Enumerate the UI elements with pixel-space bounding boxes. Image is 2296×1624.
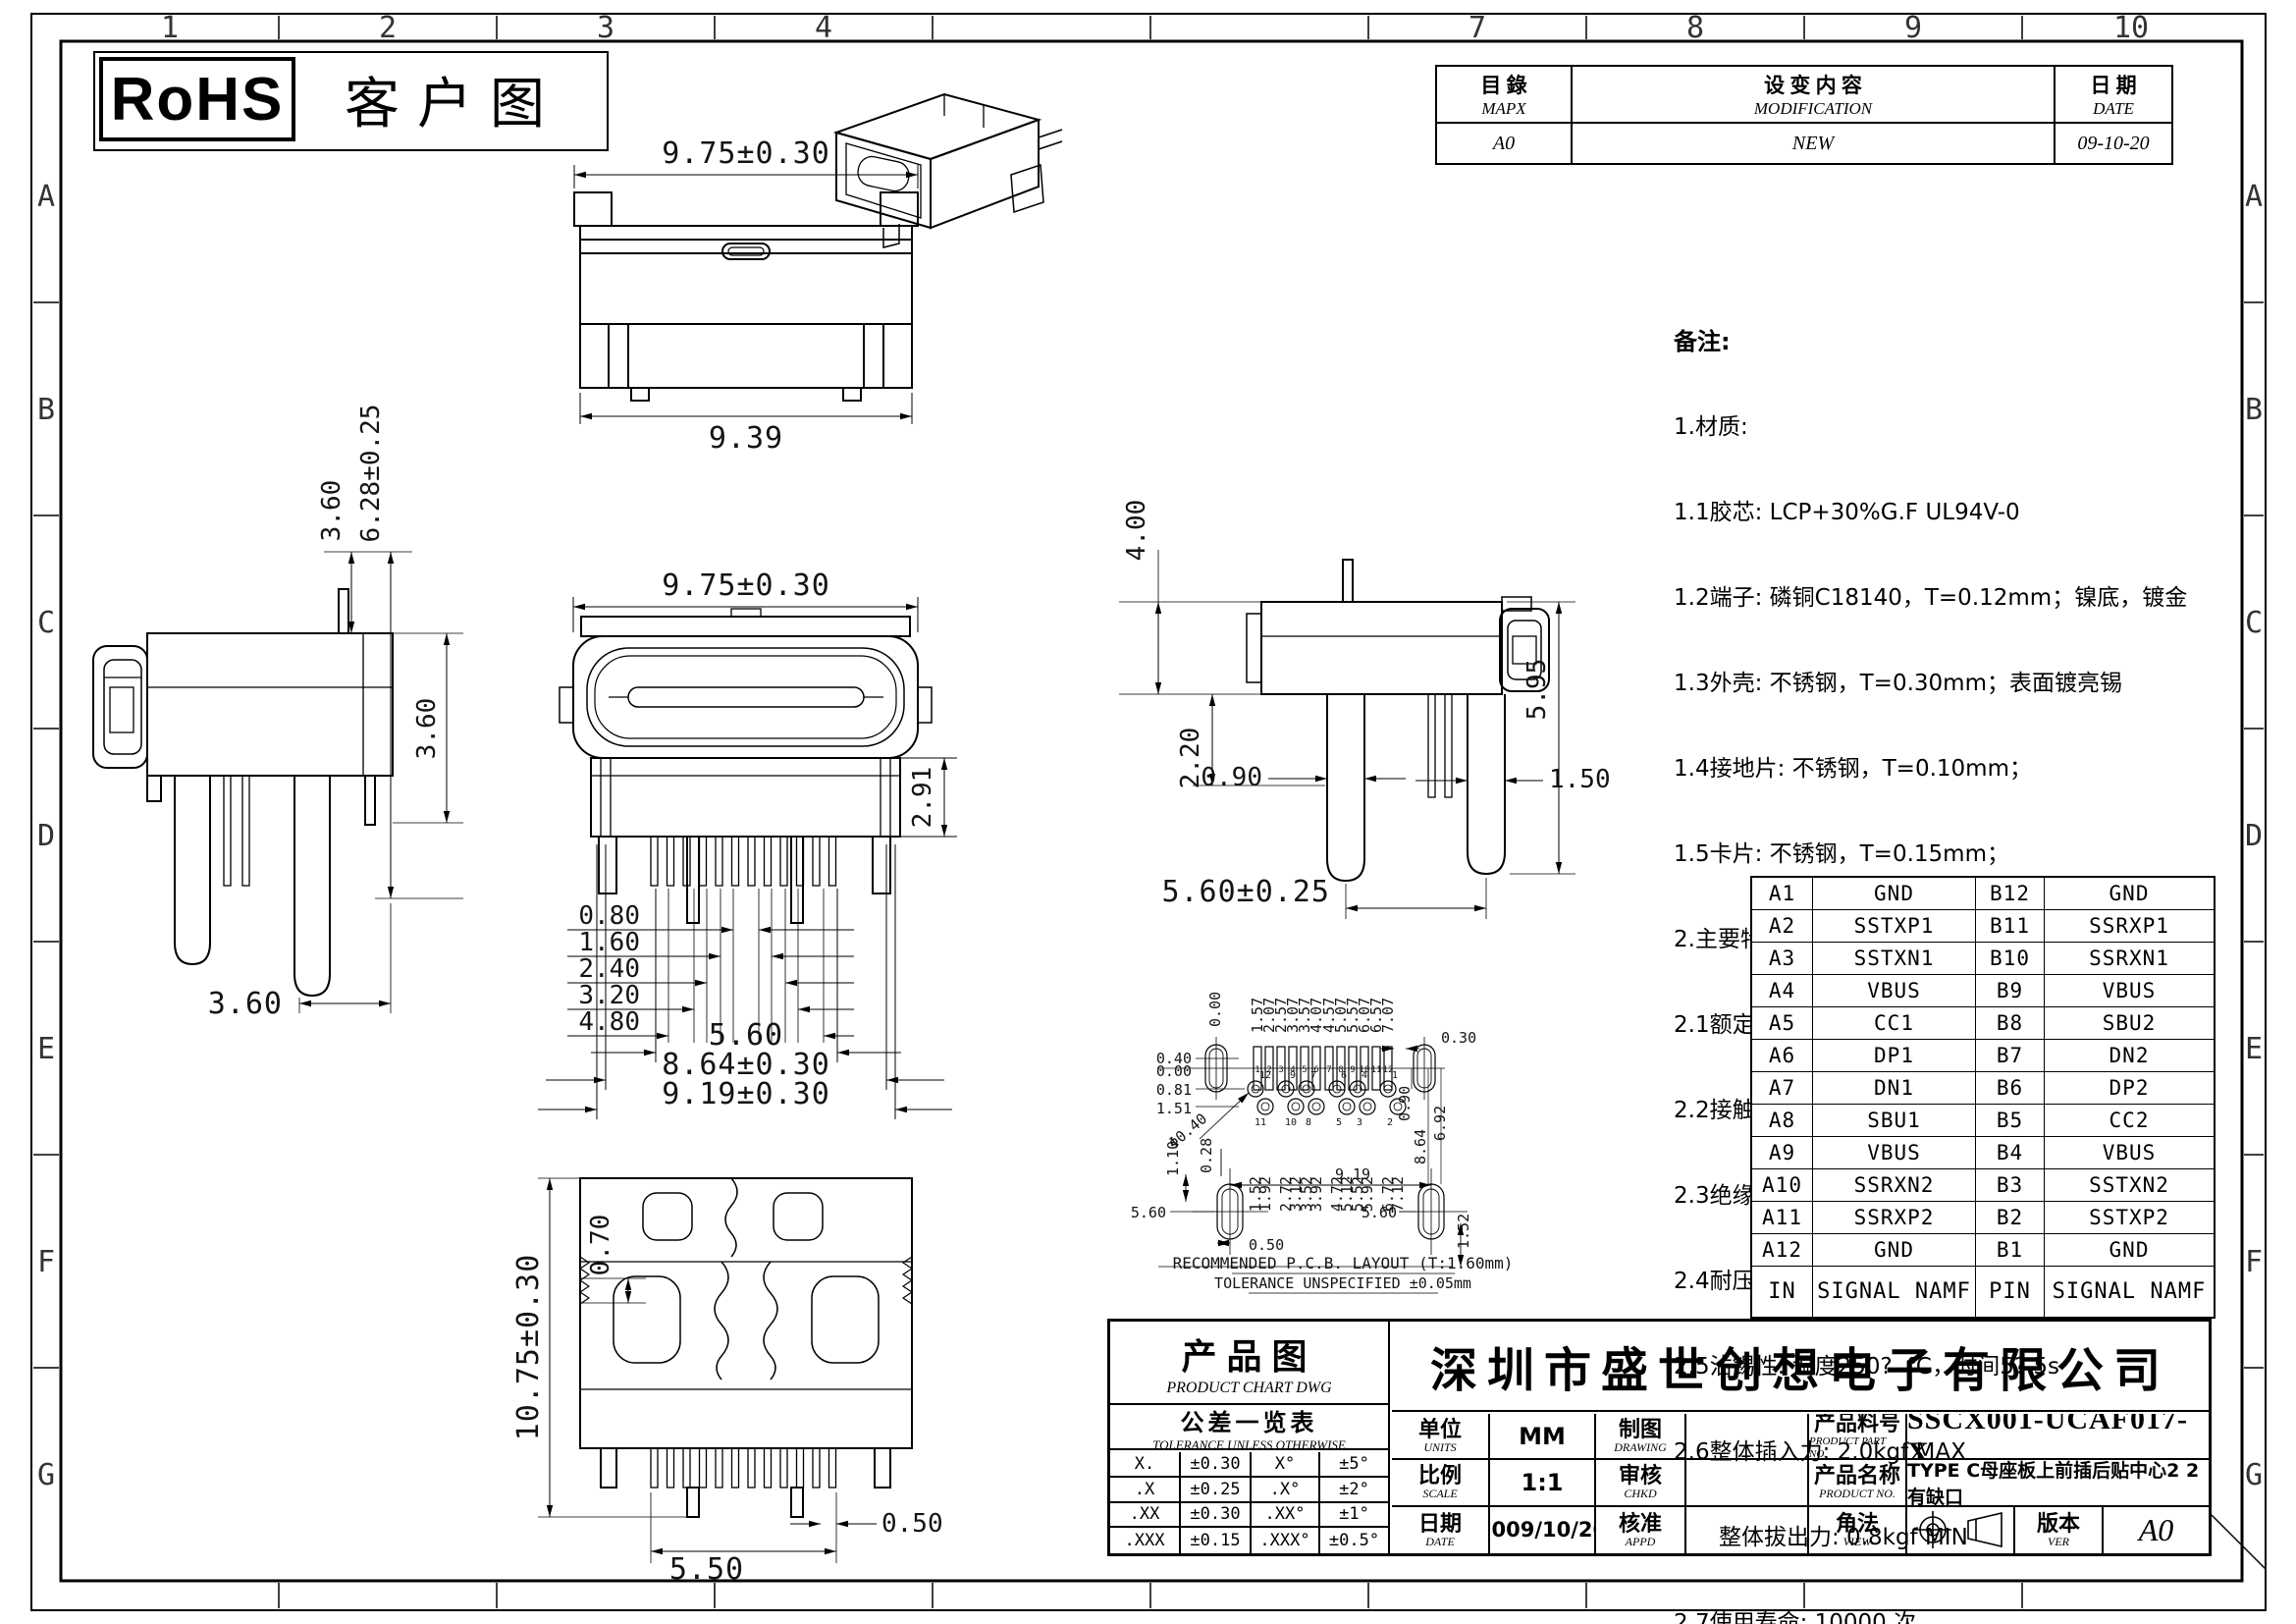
note-line: 1.材质: [1674,413,2135,442]
svg-text:3: 3 [1278,1065,1283,1075]
pin-cell: B12 [1976,878,2045,910]
part-no-label: 产品料号 PRODUCT PART NO. [1809,1414,1907,1460]
company-name: 深圳市盛世创想电子有限公司 [1392,1322,2209,1412]
svg-text:0.00: 0.00 [1206,992,1224,1027]
pin-cell: GND [1813,878,1976,910]
svg-text:A: A [2245,180,2263,214]
svg-text:E: E [37,1032,55,1066]
units-label: 单位 UNITS [1392,1414,1490,1460]
svg-text:2: 2 [1387,1117,1393,1128]
pin-cell: B7 [1976,1040,2045,1072]
svg-text:2.40: 2.40 [578,954,640,984]
revision-table: 目 錄 MAPX 设 变 内 容 MODIFICATION 日 期 DATE A… [1435,65,2173,165]
pin-cell: GND [1813,1234,1976,1267]
customer-chart-title: 客户图 [306,53,601,145]
svg-text:3.60: 3.60 [412,698,442,760]
pin-cell: B2 [1976,1202,2045,1234]
svg-text:0.50: 0.50 [1249,1236,1284,1254]
svg-text:0.50: 0.50 [881,1509,943,1539]
tol-cell: X° [1252,1452,1320,1478]
svg-text:D: D [37,819,55,853]
pin-cell: A12 [1752,1234,1813,1267]
svg-text:5.60±0.25: 5.60±0.25 [1161,875,1330,909]
pin-cell: SSRXP2 [1813,1202,1976,1234]
note-line: 1.2端子: 磷铜C18140，T=0.12mm；镍底，镀金 [1674,584,2135,613]
pin-cell: A9 [1752,1137,1813,1169]
svg-text:9: 9 [1350,1065,1355,1075]
svg-text:0.81: 0.81 [1156,1081,1192,1099]
svg-text:6.28±0.25: 6.28±0.25 [356,405,386,543]
svg-text:8: 8 [1686,11,1704,45]
appd-signature [1686,1507,1809,1553]
note-line: 1.1胶芯: LCP+30%G.F UL94V-0 [1674,499,2135,527]
tol-cell: ±0.25 [1181,1478,1252,1503]
pin-footer: IN [1752,1267,1813,1317]
svg-text:5.60: 5.60 [1131,1204,1166,1221]
svg-text:3.20: 3.20 [578,981,640,1010]
svg-text:RECOMMENDED P.C.B. LAYOUT: RECOMMENDED P.C.B. LAYOUT (T:1.60mm) [1173,1254,1514,1272]
svg-text:F: F [37,1245,55,1279]
svg-text:0.28: 0.28 [1198,1138,1215,1173]
pin-cell: DP2 [2045,1072,2214,1105]
view-label: 角法 VIEW [1809,1507,1907,1553]
svg-text:0.80: 0.80 [578,901,640,931]
pin-cell: GND [2045,1234,2214,1267]
svg-text:TOLERANCE UNSPECIFIED ±0.05m: TOLERANCE UNSPECIFIED ±0.05mm [1214,1274,1471,1292]
pin-cell: B11 [1976,910,2045,943]
part-no-value: SSCX001-UCAF017-X [1907,1414,2209,1460]
svg-text:9.75±0.30: 9.75±0.30 [662,568,830,603]
company-section: 深圳市盛世创想电子有限公司 单位 UNITS MM 制图 DRAWING 产品料… [1392,1322,2209,1553]
svg-text:0.70: 0.70 [586,1215,615,1276]
svg-text:8: 8 [1306,1117,1311,1128]
svg-text:4: 4 [1362,1070,1367,1081]
svg-text:1: 1 [161,11,179,45]
view-front [560,609,932,923]
svg-text:5: 5 [1336,1117,1342,1128]
units-value: MM [1490,1414,1596,1460]
svg-text:C: C [37,606,55,640]
svg-text:9.19±0.30: 9.19±0.30 [662,1077,830,1111]
svg-text:B: B [2245,393,2263,427]
svg-text:4.80: 4.80 [578,1007,640,1037]
tol-cell: ±0.15 [1181,1528,1252,1553]
svg-text:0.90: 0.90 [1201,763,1262,792]
pin-cell: A7 [1752,1072,1813,1105]
pin-cell: A11 [1752,1202,1813,1234]
pin-cell: B10 [1976,943,2045,975]
pin-cell: SSRXN2 [1813,1169,1976,1202]
tol-cell: ±5° [1320,1452,1388,1478]
pin-cell: SBU1 [1813,1105,1976,1137]
scale-value: 1:1 [1490,1460,1596,1506]
pin-cell: B9 [1976,975,2045,1007]
svg-text:1: 1 [1392,1070,1398,1081]
date-label: 日期 DATE [1392,1507,1490,1553]
pin-cell: DN1 [1813,1072,1976,1105]
pin-cell: SSTXP2 [2045,1202,2214,1234]
date-value: 2009/10/20 [1490,1507,1596,1553]
revision-date: 09-10-20 [2056,124,2171,163]
svg-text:C: C [2245,606,2263,640]
pin-cell: A10 [1752,1169,1813,1202]
drawing-label: 制图 DRAWING [1596,1414,1686,1460]
third-angle-projection-icon [1911,1509,2009,1550]
svg-text:7: 7 [1468,11,1486,45]
svg-text:1.50: 1.50 [1549,765,1611,794]
customer-chart-label: 客户图 [345,60,562,139]
svg-text:5.50: 5.50 [669,1552,744,1587]
svg-text:2.91: 2.91 [908,767,937,829]
svg-text:10.75±0.30: 10.75±0.30 [511,1254,546,1441]
pin-cell: B8 [1976,1007,2045,1040]
svg-text:11: 11 [1371,1065,1382,1075]
revision-header-modification: 设 变 内 容 MODIFICATION [1573,67,2056,124]
tol-cell: ±1° [1320,1503,1388,1529]
tol-cell: ±0.5° [1320,1528,1388,1553]
ver-label: 版本 VER [2015,1507,2104,1553]
svg-text:6: 6 [1341,1070,1347,1081]
tol-cell: .X° [1252,1478,1320,1503]
product-name-value: TYPE C母座板上前插后贴中心2 2有缺口 [1907,1460,2209,1506]
drawing-sheet: 1 2 3 4 7 8 9 10 A B C D E F G A B C D E… [0,0,2296,1624]
pin-cell: B4 [1976,1137,2045,1169]
pin-cell: A1 [1752,878,1813,910]
svg-text:5.60: 5.60 [1362,1204,1397,1221]
view-ver-cell: 版本 VER A0 [1907,1507,2209,1553]
svg-text:8.64: 8.64 [1412,1129,1429,1164]
svg-text:3: 3 [1357,1117,1362,1128]
pin-cell: SBU2 [2045,1007,2214,1040]
pin-cell: VBUS [2045,1137,2214,1169]
tolerance-title: 公差一览表 TOLERANCE UNLESS OTHERWISE [1110,1407,1388,1450]
svg-text:7: 7 [1326,1065,1331,1075]
svg-text:7.07: 7.07 [1379,998,1397,1033]
pin-cell: B3 [1976,1169,2045,1202]
pin-cell: SSTXN2 [2045,1169,2214,1202]
tol-cell: .X [1110,1478,1181,1503]
svg-text:B: B [37,393,55,427]
pin-cell: A8 [1752,1105,1813,1137]
tol-cell: .XXX° [1252,1528,1320,1553]
pin-cell: B1 [1976,1234,2045,1267]
svg-text:3.60: 3.60 [208,987,283,1021]
pin-cell: A5 [1752,1007,1813,1040]
pin-table: A1GNDB12GND A2SSTXP1B11SSRXP1 A3SSTXN1B1… [1750,876,2216,1319]
note-line: 1.5卡片: 不锈钢，T=0.15mm； [1674,840,2135,869]
appd-label: 核准 APPD [1596,1507,1686,1553]
svg-text:12: 12 [1259,1070,1271,1081]
pin-cell: SSTXN1 [1813,943,1976,975]
svg-text:10: 10 [1285,1117,1297,1128]
pin-cell: A4 [1752,975,1813,1007]
view-bottom [580,1178,912,1517]
svg-text:1.60: 1.60 [578,928,640,957]
svg-text:5.95: 5.95 [1522,659,1552,721]
tol-cell: ±0.30 [1181,1503,1252,1529]
pin-cell: DP1 [1813,1040,1976,1072]
pin-footer: SIGNAL NAMF [2045,1267,2214,1317]
view-side-left [93,589,393,996]
pin-footer: PIN [1976,1267,2045,1317]
header-box: RoHS 客户图 [93,51,609,151]
approval-grid: 单位 UNITS MM 制图 DRAWING 产品料号 PRODUCT PART… [1392,1414,2209,1553]
rohs-label: RoHS [111,65,285,135]
pin-cell: CC1 [1813,1007,1976,1040]
pin-cell: CC2 [2045,1105,2214,1137]
tol-cell: ±2° [1320,1478,1388,1503]
svg-text:7: 7 [1310,1070,1316,1081]
tolerance-grid: X.±0.30X°±5° .X±0.25.X°±2° .XX±0.30.XX°±… [1110,1452,1388,1553]
view-isometric [836,94,1062,247]
product-name-label: 产品名称 PRODUCT NO. [1809,1460,1907,1506]
svg-text:9: 9 [1290,1070,1296,1081]
title-block: 产品图 PRODUCT CHART DWG 公差一览表 TOLERANCE UN… [1107,1319,2212,1556]
pin-cell: SSRXP1 [2045,910,2214,943]
svg-text:2: 2 [379,11,397,45]
revision-header-index: 目 錄 MAPX [1437,67,1573,124]
pin-cell: SSRXN1 [2045,943,2214,975]
revision-header-date: 日 期 DATE [2056,67,2171,124]
revision-rev: A0 [1437,124,1573,163]
svg-text:4: 4 [815,11,832,45]
svg-text:11: 11 [1255,1117,1266,1128]
svg-text:4.00: 4.00 [1122,500,1151,562]
revision-modification: NEW [1573,124,2056,163]
svg-text:1.52: 1.52 [1455,1214,1472,1249]
svg-text:A: A [37,180,55,214]
svg-text:0.00: 0.00 [1156,1062,1192,1080]
scale-label: 比例 SCALE [1392,1460,1490,1506]
svg-text:3: 3 [597,11,614,45]
view-side-right [1247,560,1549,881]
svg-text:1.92: 1.92 [1256,1176,1274,1212]
tolerance-section: 产品图 PRODUCT CHART DWG 公差一览表 TOLERANCE UN… [1110,1322,1390,1553]
svg-text:5: 5 [1302,1065,1307,1075]
svg-text:3.60: 3.60 [317,480,347,542]
pin-cell: DN2 [2045,1040,2214,1072]
svg-text:1.10: 1.10 [1164,1141,1182,1176]
pin-footer: SIGNAL NAMF [1813,1267,1976,1317]
pin-cell: VBUS [1813,975,1976,1007]
projection-symbol [1907,1507,2015,1553]
svg-text:0.30: 0.30 [1441,1029,1476,1047]
chkd-label: 审核 CHKD [1596,1460,1686,1506]
svg-text:9.75±0.30: 9.75±0.30 [662,136,830,171]
dim-side-left: 3.60 6.28±0.25 3.60 3.60 [208,405,463,1021]
rohs-mark: RoHS [99,57,295,141]
drawing-signature [1686,1414,1809,1460]
pin-cell: A6 [1752,1040,1813,1072]
svg-text:3.92: 3.92 [1308,1176,1325,1212]
notes-title: 备注: [1674,328,2135,356]
svg-text:0.90: 0.90 [1396,1086,1414,1121]
svg-text:6.92: 6.92 [1431,1106,1449,1141]
tol-cell: X. [1110,1452,1181,1478]
svg-text:G: G [2245,1458,2263,1492]
ver-value: A0 [2104,1507,2209,1553]
svg-text:G: G [37,1458,55,1492]
chkd-signature [1686,1460,1809,1506]
tol-cell: ±0.30 [1181,1452,1252,1478]
note-line: 1.3外壳: 不锈钢，T=0.30mm；表面镀亮锡 [1674,670,2135,698]
dim-bottom-view: 10.75±0.30 0.70 5.50 0.50 [511,1178,943,1587]
svg-text:D: D [2245,819,2263,853]
pcb-labels: 1.57 2.07 2.57 3.07 3.57 4.07 4.57 5.07 … [1131,992,1514,1292]
svg-text:E: E [2245,1032,2263,1066]
svg-text:1.51: 1.51 [1156,1100,1192,1117]
tol-cell: .XX [1110,1503,1181,1529]
pin-cell: A3 [1752,943,1813,975]
pin-cell: A2 [1752,910,1813,943]
pin-cell: VBUS [2045,975,2214,1007]
svg-text:F: F [2245,1245,2263,1279]
pin-cell: B5 [1976,1105,2045,1137]
pin-cell: SSTXP1 [1813,910,1976,943]
svg-text:9: 9 [1904,11,1922,45]
note-line: 2.7使用寿命: 10000 次 [1674,1609,2135,1624]
tol-cell: .XX° [1252,1503,1320,1529]
svg-text:9.19: 9.19 [1335,1165,1370,1183]
product-chart-title: 产品图 PRODUCT CHART DWG [1110,1322,1388,1405]
tol-cell: .XXX [1110,1528,1181,1553]
pin-cell: VBUS [1813,1137,1976,1169]
pin-cell: GND [2045,878,2214,910]
note-line: 1.4接地片: 不锈钢，T=0.10mm； [1674,755,2135,784]
pin-cell: B6 [1976,1072,2045,1105]
svg-text:9.39: 9.39 [709,421,783,456]
svg-text:10: 10 [2113,11,2149,45]
view-top [574,192,918,401]
